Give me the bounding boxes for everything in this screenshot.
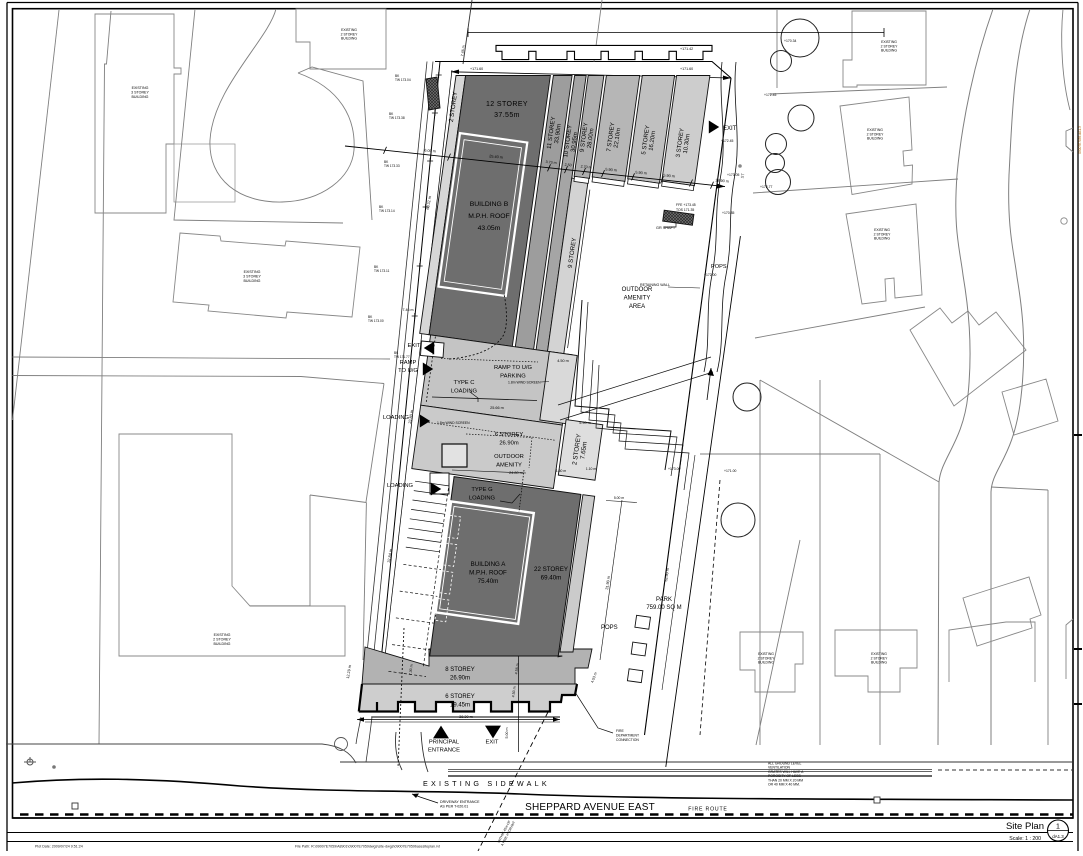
svg-text:+172.00: +172.00 bbox=[704, 273, 716, 277]
svg-text:6 STOREY: 6 STOREY bbox=[445, 694, 475, 700]
svg-text:5.90 m: 5.90 m bbox=[579, 421, 591, 425]
svg-text:Scale: 1 : 200: Scale: 1 : 200 bbox=[1009, 836, 1041, 842]
svg-text:LOADING: LOADING bbox=[451, 389, 478, 395]
svg-text:TW 173.04: TW 173.04 bbox=[395, 78, 411, 82]
svg-text:EXISTING: EXISTING bbox=[214, 633, 231, 637]
svg-text:AMENITY: AMENITY bbox=[624, 296, 651, 302]
svg-text:LOADING: LOADING bbox=[387, 483, 414, 489]
svg-text:BUILDING: BUILDING bbox=[244, 279, 261, 283]
svg-text:RETAINING WALL: RETAINING WALL bbox=[640, 283, 670, 287]
svg-text:BUILDING: BUILDING bbox=[132, 95, 149, 99]
svg-text:+173.05: +173.05 bbox=[727, 173, 739, 177]
svg-text:GR SHAFT: GR SHAFT bbox=[656, 226, 676, 230]
svg-text:12 STOREY: 12 STOREY bbox=[486, 101, 528, 108]
svg-text:dA1.3: dA1.3 bbox=[1052, 834, 1064, 839]
svg-text:OUTDOOR: OUTDOOR bbox=[494, 454, 524, 460]
svg-text:8 STOREY: 8 STOREY bbox=[445, 667, 475, 673]
svg-text:1.10 m: 1.10 m bbox=[586, 467, 597, 471]
svg-text:LOADING: LOADING bbox=[469, 496, 496, 502]
svg-text:1: 1 bbox=[1056, 824, 1060, 831]
svg-text:22 STOREY: 22 STOREY bbox=[534, 566, 568, 573]
svg-text:POPS: POPS bbox=[601, 625, 618, 631]
svg-text:TOS 171.35: TOS 171.35 bbox=[676, 208, 694, 212]
svg-text:BUILDING: BUILDING bbox=[867, 137, 883, 141]
svg-text:PRINCIPAL: PRINCIPAL bbox=[429, 740, 460, 746]
svg-text:09007E7059-dA1.3: 09007E7059-dA1.3 bbox=[1078, 126, 1082, 154]
svg-text:38.30 m: 38.30 m bbox=[459, 715, 473, 719]
svg-text:BUILDING: BUILDING bbox=[214, 642, 231, 646]
svg-text:BUILDING: BUILDING bbox=[874, 237, 890, 241]
svg-text:75.40m: 75.40m bbox=[478, 578, 499, 585]
svg-text:AMENITY: AMENITY bbox=[496, 463, 522, 469]
svg-text:+172.77: +172.77 bbox=[760, 185, 772, 189]
svg-text:M.P.H. ROOF: M.P.H. ROOF bbox=[468, 213, 509, 220]
svg-text:DRIVEWAY ENTRANCE: DRIVEWAY ENTRANCE bbox=[440, 800, 480, 804]
svg-text:POPS: POPS bbox=[711, 264, 727, 270]
svg-text:AS PER T-020.01: AS PER T-020.01 bbox=[440, 805, 468, 809]
svg-text:AREA: AREA bbox=[629, 304, 645, 310]
svg-text:37.55m: 37.55m bbox=[494, 112, 520, 119]
svg-text:26.90m: 26.90m bbox=[499, 441, 519, 447]
svg-text:69.40m: 69.40m bbox=[541, 575, 562, 582]
svg-text:BUILDING: BUILDING bbox=[341, 37, 357, 41]
svg-text:3 STOREY: 3 STOREY bbox=[131, 91, 149, 95]
svg-text:+171.42: +171.42 bbox=[680, 47, 693, 51]
svg-text:PARKING: PARKING bbox=[500, 374, 526, 380]
svg-text:BUILDING: BUILDING bbox=[881, 49, 897, 53]
svg-text:BUILDING: BUILDING bbox=[758, 661, 774, 665]
svg-text:CONNECTION: CONNECTION bbox=[616, 738, 639, 742]
svg-text:EXIT: EXIT bbox=[408, 343, 421, 349]
svg-text:FFE +173.45: FFE +173.45 bbox=[676, 203, 696, 207]
svg-text:TW 173.14: TW 173.14 bbox=[379, 209, 395, 213]
svg-text:+171.60: +171.60 bbox=[470, 67, 483, 71]
svg-text:EXIT: EXIT bbox=[723, 126, 737, 132]
svg-text:3 STOREY: 3 STOREY bbox=[243, 275, 261, 279]
svg-text:5.00 m: 5.00 m bbox=[505, 728, 509, 739]
svg-text:OR 40 MM X 40 MM.: OR 40 MM X 40 MM. bbox=[768, 783, 800, 787]
svg-text:TYPE C: TYPE C bbox=[454, 380, 475, 386]
svg-text:EXISTING: EXISTING bbox=[132, 86, 149, 90]
svg-text:4.50 m: 4.50 m bbox=[557, 359, 569, 363]
svg-text:1.8m WIND SCREEN: 1.8m WIND SCREEN bbox=[437, 421, 470, 425]
svg-text:File Path: R:\09007E7059\A890: File Path: R:\09007E7059\A8901\09007E705… bbox=[295, 845, 440, 849]
svg-text:Site Plan: Site Plan bbox=[1006, 821, 1044, 832]
svg-text:BUILDING B: BUILDING B bbox=[470, 201, 509, 208]
svg-text:+173.00: +173.00 bbox=[668, 467, 680, 471]
svg-text:1.60 m: 1.60 m bbox=[556, 469, 567, 473]
svg-text:FIRE ROUTE: FIRE ROUTE bbox=[688, 807, 727, 813]
svg-text:TYPE G: TYPE G bbox=[471, 487, 493, 493]
svg-text:RAMP: RAMP bbox=[400, 360, 417, 366]
svg-text:+171.60: +171.60 bbox=[680, 67, 693, 71]
svg-text:25.66 m: 25.66 m bbox=[490, 406, 504, 410]
svg-text:TW 173.11: TW 173.11 bbox=[374, 269, 390, 273]
svg-text:M.P.H. ROOF: M.P.H. ROOF bbox=[469, 570, 507, 577]
svg-text:TO U/G: TO U/G bbox=[398, 368, 418, 374]
svg-text:+170.85: +170.85 bbox=[722, 211, 734, 215]
svg-text:PARK: PARK bbox=[656, 597, 672, 603]
svg-text:ENTRANCE: ENTRANCE bbox=[428, 748, 460, 754]
svg-text:TW 173.33: TW 173.33 bbox=[384, 164, 400, 168]
svg-text:5.00 m: 5.00 m bbox=[614, 496, 625, 500]
svg-text:EXIT: EXIT bbox=[486, 740, 499, 746]
svg-text:2.50: 2.50 bbox=[564, 163, 571, 168]
svg-text:Plot Date: 2009/07/24 9:51:24: Plot Date: 2009/07/24 9:51:24 bbox=[35, 845, 83, 849]
svg-text:+172.45: +172.45 bbox=[764, 93, 776, 97]
svg-text:19.45m: 19.45m bbox=[450, 703, 470, 709]
svg-text:TW 173.00: TW 173.00 bbox=[368, 319, 384, 323]
svg-text:SHEPPARD AVENUE EAST: SHEPPARD AVENUE EAST bbox=[525, 802, 655, 813]
svg-text:26.90m: 26.90m bbox=[450, 676, 470, 682]
svg-text:BUILDING: BUILDING bbox=[871, 661, 887, 665]
svg-text:TW 171.77: TW 171.77 bbox=[394, 355, 410, 359]
svg-text:43.05m: 43.05m bbox=[478, 225, 501, 232]
svg-text:+170.34: +170.34 bbox=[784, 39, 796, 43]
svg-text:1.8m WIND SCREEN: 1.8m WIND SCREEN bbox=[508, 381, 541, 385]
svg-text:LOADING: LOADING bbox=[383, 415, 410, 421]
svg-text:759.00 SQ M: 759.00 SQ M bbox=[646, 605, 681, 611]
svg-text:2 STOREY: 2 STOREY bbox=[213, 638, 231, 642]
svg-text:TW 173.38: TW 173.38 bbox=[389, 116, 405, 120]
svg-text:FIRE: FIRE bbox=[616, 729, 624, 733]
svg-text:6 STOREY: 6 STOREY bbox=[495, 432, 524, 438]
svg-text:EXISTING: EXISTING bbox=[244, 270, 261, 274]
svg-text:BUILDING A: BUILDING A bbox=[471, 561, 507, 568]
svg-text:OUTDOOR: OUTDOOR bbox=[622, 287, 653, 293]
svg-text:EXISTING SIDEWALK: EXISTING SIDEWALK bbox=[423, 779, 550, 788]
svg-text:+171.00: +171.00 bbox=[724, 469, 736, 473]
svg-text:RAMP TO U/G: RAMP TO U/G bbox=[494, 365, 533, 371]
svg-text:DEPARTMENT: DEPARTMENT bbox=[616, 734, 639, 738]
